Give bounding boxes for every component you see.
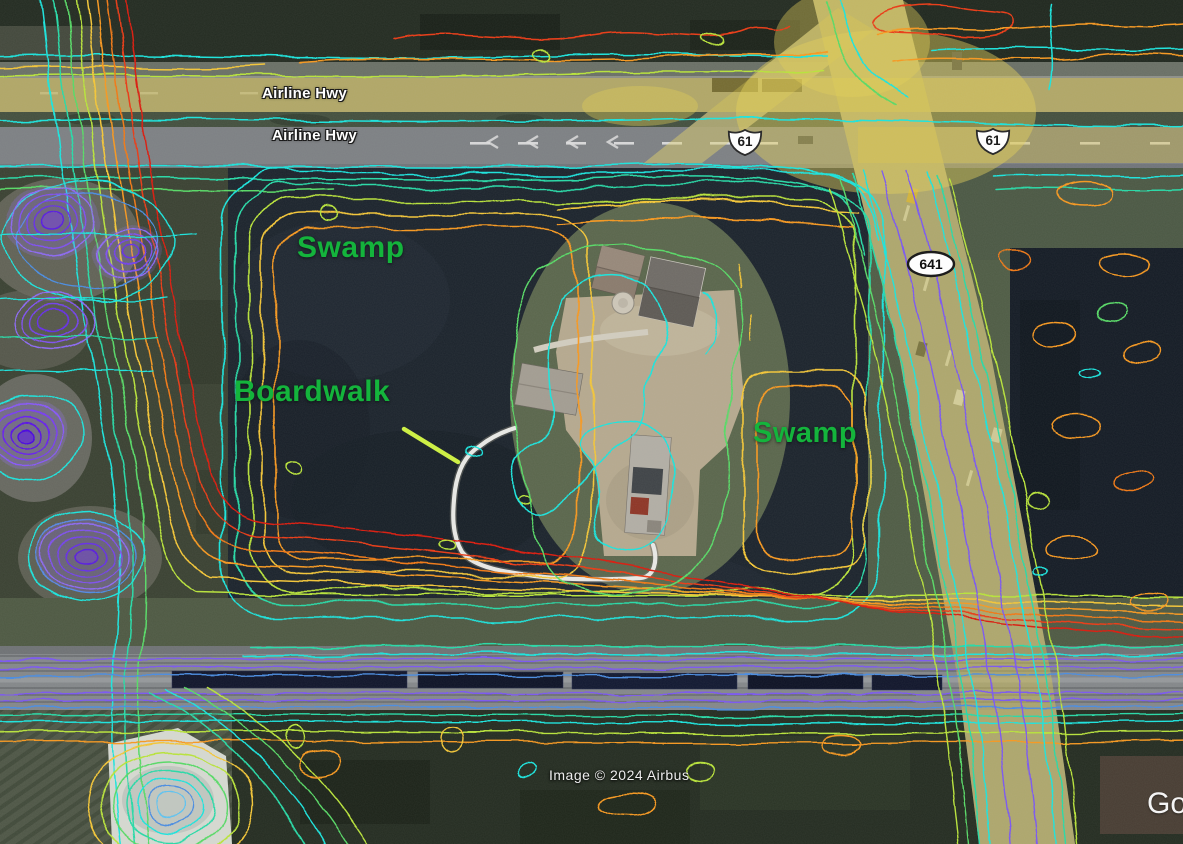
place-label-boardwalk: Boardwalk: [234, 377, 390, 407]
la-route-641-shield: 641: [906, 250, 956, 278]
us-route-61-shield-west: 61: [727, 128, 763, 157]
google-watermark-partial: Go: [1147, 789, 1183, 819]
imagery-attribution: Image © 2024 Airbus: [549, 768, 689, 782]
la-route-641-shield-number: 641: [919, 256, 943, 272]
road-label-airline-hwy-lower: Airline Hwy: [272, 128, 357, 143]
map-viewport[interactable]: Airline Hwy Airline Hwy 61 61 641 Swamp …: [0, 0, 1183, 844]
place-label-swamp-west: Swamp: [297, 233, 405, 263]
place-label-swamp-east: Swamp: [753, 419, 857, 448]
us-route-61-shield-east-number: 61: [985, 133, 1001, 148]
road-label-airline-hwy-upper: Airline Hwy: [262, 86, 347, 101]
us-route-61-shield-west-number: 61: [737, 134, 753, 149]
us-route-61-shield-east: 61: [975, 127, 1011, 156]
